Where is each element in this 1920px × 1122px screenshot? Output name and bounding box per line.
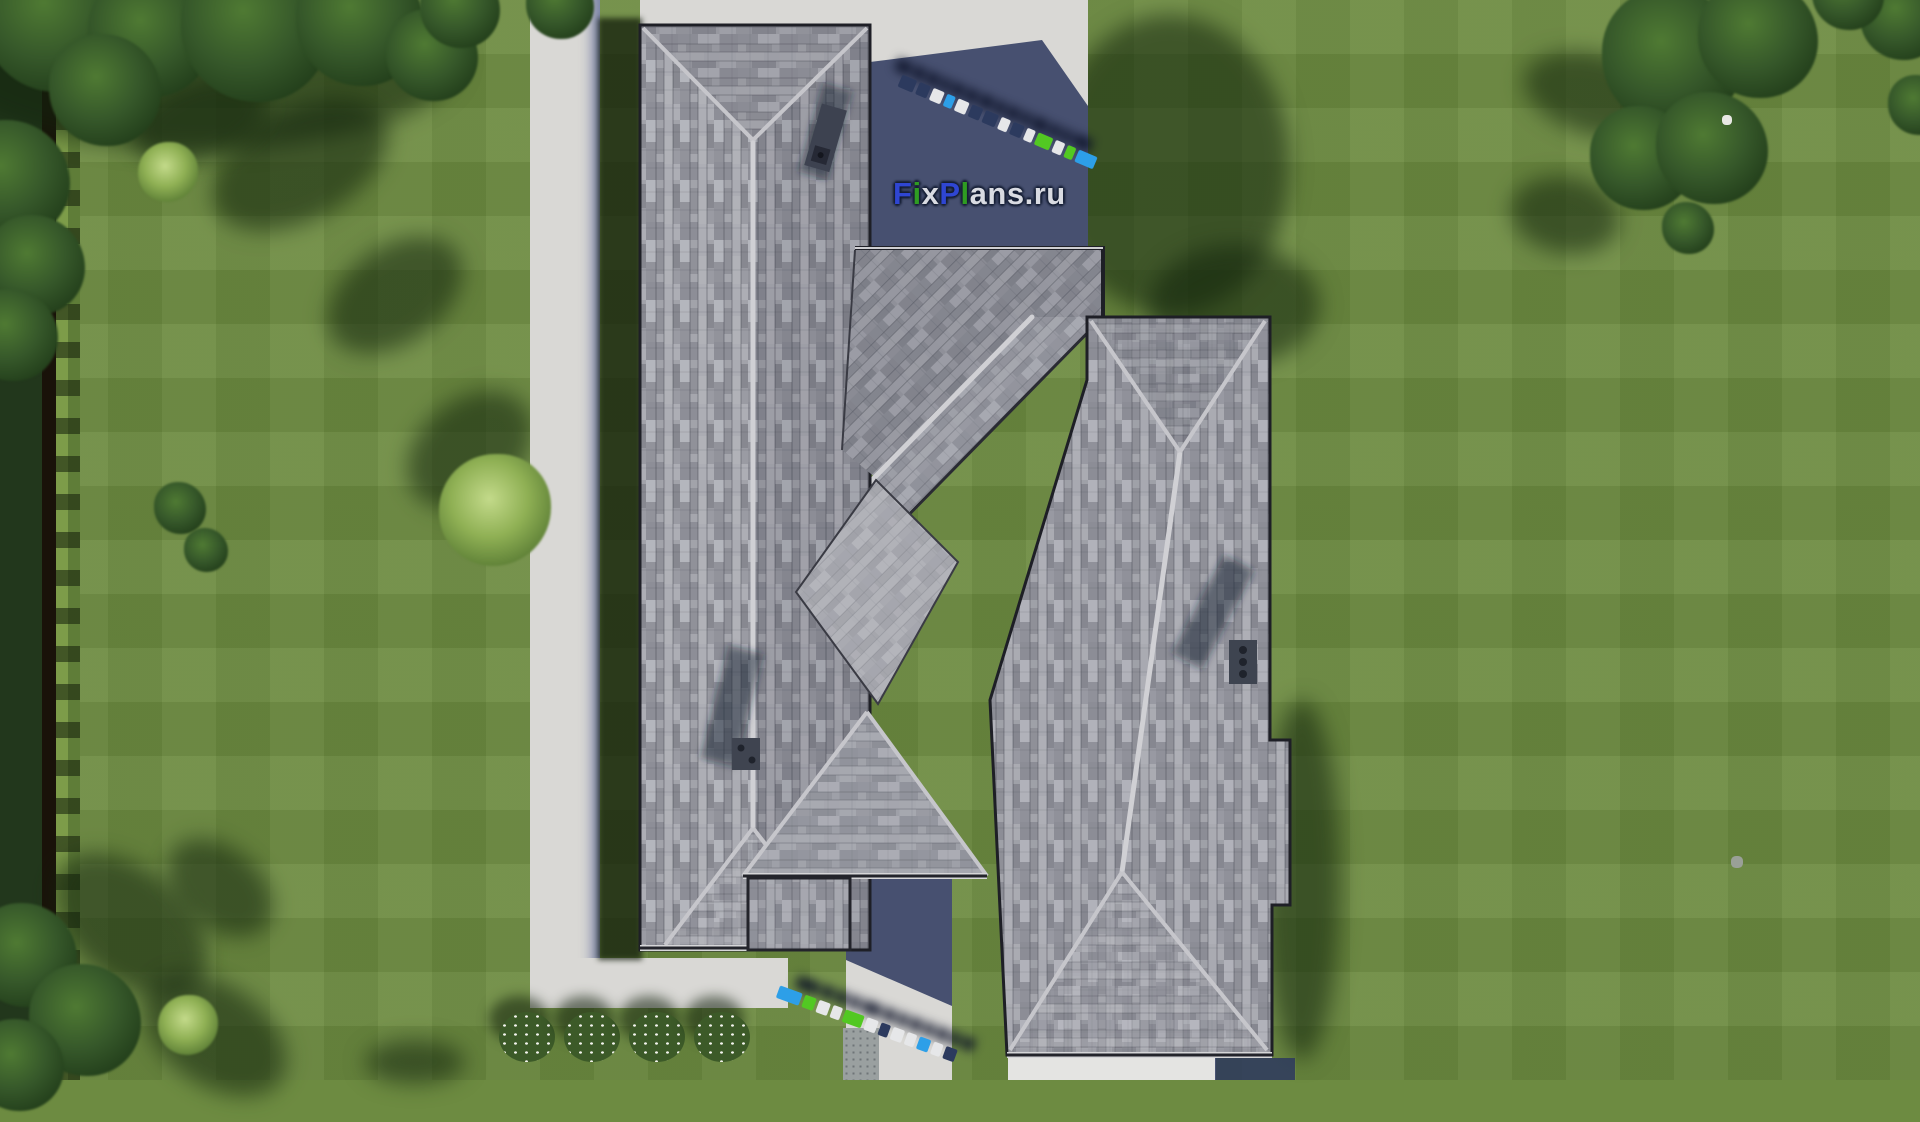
aerial-house-render: FixPlans.ru xyxy=(0,0,1920,1080)
logo-3d-letter-block xyxy=(930,1041,944,1057)
roof-right-wing xyxy=(990,317,1290,1055)
watermark-letter: x xyxy=(922,176,940,211)
watermark-letter: r xyxy=(1034,176,1047,211)
watermark-letter: l xyxy=(961,176,970,211)
watermark-letter: . xyxy=(1025,176,1034,211)
watermark-letter: s xyxy=(1007,176,1025,211)
tree-canopy xyxy=(154,482,206,534)
watermark-letter: F xyxy=(893,176,912,211)
small-speck xyxy=(1731,856,1743,868)
small-speck xyxy=(1722,115,1732,125)
tree-canopy xyxy=(184,528,228,572)
logo-3d-letter-block xyxy=(904,1032,918,1048)
watermark-letter: a xyxy=(970,176,988,211)
watermark-letter: i xyxy=(912,176,921,211)
watermark-letter: P xyxy=(939,176,960,211)
tree-canopy xyxy=(1662,202,1714,254)
logo-3d-letter-block xyxy=(829,1005,843,1021)
flower-bush xyxy=(694,1012,750,1062)
fixplans-watermark: FixPlans.ru xyxy=(893,176,1066,212)
flower-bush xyxy=(564,1012,620,1062)
flower-bush xyxy=(629,1012,685,1062)
flower-bush xyxy=(499,1012,555,1062)
roof-porch xyxy=(748,878,850,950)
logo-3d-letter-block xyxy=(877,1022,891,1038)
watermark-letter: n xyxy=(987,176,1006,211)
watermark-letter: u xyxy=(1046,176,1065,211)
